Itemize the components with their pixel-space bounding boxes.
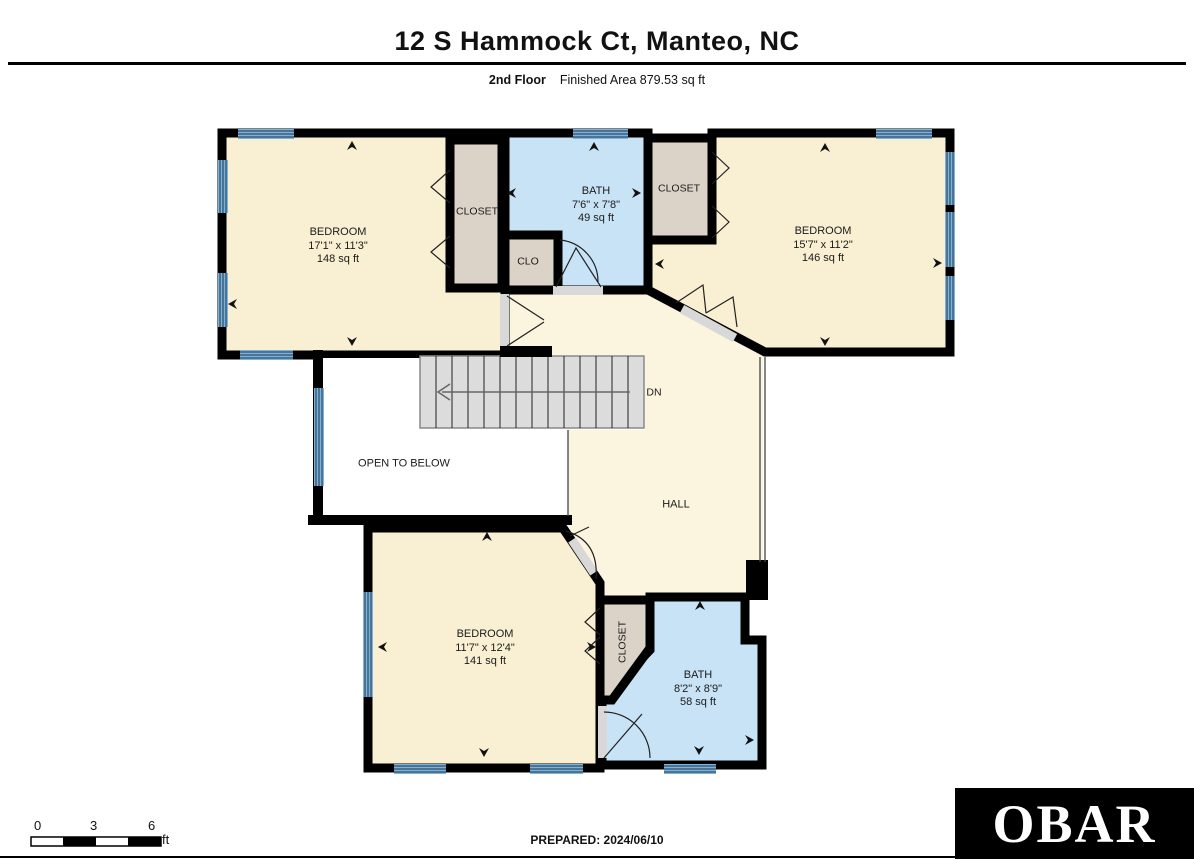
scale-tick-3: 3 <box>90 818 97 833</box>
door-gap-bedroom-top-left <box>500 294 509 346</box>
obar-logo: OBAR <box>955 788 1194 859</box>
open-to-below-label: OPEN TO BELOW <box>358 457 450 471</box>
room-dims: 8'2" x 8'9" <box>674 682 722 696</box>
room-name: BEDROOM <box>455 628 515 642</box>
closet-top-right-label: CLOSET <box>658 182 700 196</box>
wall-open-below-bottom <box>308 515 572 525</box>
bath-top-label: BATH 7'6" x 7'8" 49 sq ft <box>572 185 620 226</box>
wall-above-stairs <box>500 346 552 357</box>
door-gap-bath-top <box>553 286 603 295</box>
window-marker <box>240 350 293 360</box>
room-name: BATH <box>674 669 722 683</box>
room-area: 141 sq ft <box>455 655 515 669</box>
clo-label: CLO <box>517 255 539 269</box>
window-marker <box>945 152 955 205</box>
scale-bar-ticks: 0 3 6 <box>30 818 170 832</box>
bedroom-top-left-label: BEDROOM 17'1" x 11'3" 148 sq ft <box>308 226 368 267</box>
window-marker <box>218 273 228 327</box>
window-marker <box>573 129 628 139</box>
hall-label: HALL <box>662 498 690 512</box>
window-marker <box>363 592 373 697</box>
window-marker <box>945 212 955 267</box>
room-name: BATH <box>572 185 620 199</box>
stairs-dn-label: DN <box>646 386 661 400</box>
room-area: 49 sq ft <box>572 212 620 226</box>
room-area: 148 sq ft <box>308 253 368 267</box>
room-dims: 15'7" x 11'2" <box>793 238 853 252</box>
door-gap-bath-bottom <box>598 706 607 758</box>
floor-plan-svg <box>0 0 1194 859</box>
floor-plan-page: 12 S Hammock Ct, Manteo, NC 2nd FloorFin… <box>0 0 1194 859</box>
window-marker <box>664 764 716 774</box>
window-marker <box>945 276 955 320</box>
bedroom-bottom-label: BEDROOM 11'7" x 12'4" 141 sq ft <box>455 628 515 669</box>
room-name: BEDROOM <box>308 226 368 240</box>
room-dims: 17'1" x 11'3" <box>308 239 368 253</box>
scale-tick-0: 0 <box>34 818 41 833</box>
window-marker <box>218 160 228 213</box>
room-name: BEDROOM <box>793 225 853 239</box>
scale-tick-6: 6 <box>148 818 155 833</box>
window-marker <box>530 764 583 774</box>
window-marker <box>394 764 446 774</box>
room-area: 146 sq ft <box>793 252 853 266</box>
room-dims: 11'7" x 12'4" <box>455 641 515 655</box>
closet-bottom-label: CLOSET <box>616 621 630 663</box>
bedroom-top-right-label: BEDROOM 15'7" x 11'2" 146 sq ft <box>793 225 853 266</box>
room-area: 58 sq ft <box>674 696 722 710</box>
closet-top-left-label: CLOSET <box>456 205 498 219</box>
room-dims: 7'6" x 7'8" <box>572 198 620 212</box>
bath-bottom-label: BATH 8'2" x 8'9" 58 sq ft <box>674 669 722 710</box>
stairs <box>420 356 644 428</box>
window-marker <box>238 129 294 139</box>
window-marker <box>876 129 932 139</box>
window-marker <box>314 388 324 486</box>
wall-hall-stub <box>746 560 768 600</box>
